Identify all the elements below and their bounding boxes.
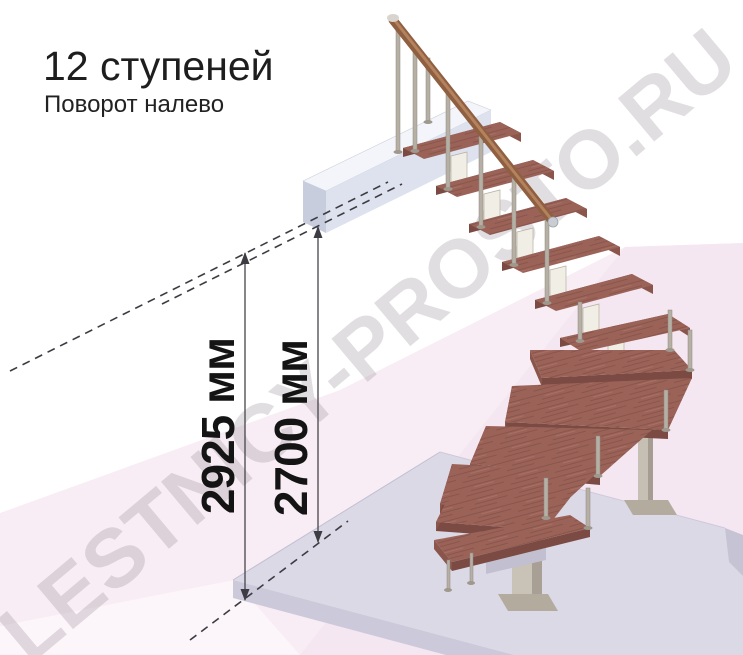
dimension-floor-to-ceiling-label: 2700 мм [265, 340, 317, 516]
staircase-diagram-svg: LESTNICY-PROSTO.RU [0, 0, 743, 655]
page-title: 12 ступеней [43, 43, 274, 89]
handrail [387, 14, 558, 227]
handrail-top-cap [387, 14, 399, 22]
handrail-end-cap [548, 217, 558, 227]
stair-diagram-canvas: LESTNICY-PROSTO.RU [0, 0, 743, 655]
dimension-floor-to-floor-label: 2925 мм [192, 338, 244, 514]
header: 12 ступеней Поворот налево [43, 43, 274, 118]
page-subtitle: Поворот налево [44, 91, 224, 118]
